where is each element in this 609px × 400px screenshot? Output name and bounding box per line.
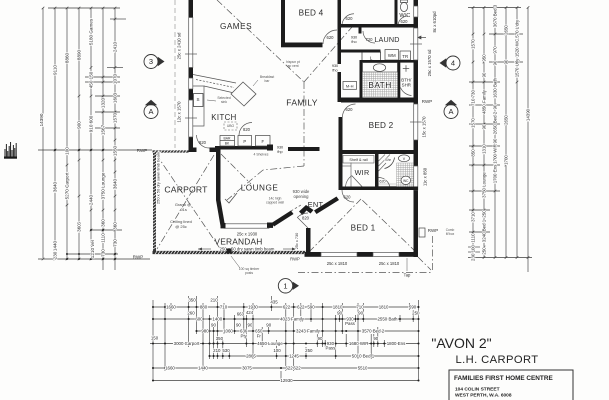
svg-text:1550: 1550 (113, 145, 118, 156)
svg-text:90: 90 (482, 124, 487, 129)
svg-text:P: P (243, 139, 246, 144)
svg-text:720: 720 (366, 37, 374, 42)
svg-text:BK: BK (225, 142, 230, 146)
svg-text:2410: 2410 (113, 41, 118, 52)
svg-text:1660: 1660 (165, 366, 175, 371)
svg-text:260: 260 (187, 311, 195, 316)
svg-text:1110: 1110 (101, 233, 106, 243)
svg-text:1400: 1400 (212, 317, 222, 322)
svg-text:910 600: 910 600 (89, 115, 94, 132)
svg-text:A: A (148, 107, 153, 116)
svg-text:FAMILIES FIRST HOME CENTRE: FAMILIES FIRST HOME CENTRE (454, 375, 553, 382)
svg-text:LAUND: LAUND (374, 35, 399, 44)
svg-text:M-H: M-H (346, 83, 354, 88)
svg-text:230 100: 230 100 (471, 245, 476, 261)
svg-text:3670 Bed 3: 3670 Bed 3 (493, 4, 498, 27)
svg-text:663: 663 (237, 311, 245, 316)
svg-text:1570: 1570 (471, 118, 476, 128)
svg-text:F: F (262, 139, 265, 144)
svg-text:622: 622 (297, 305, 305, 310)
svg-text:L.H. CARPORT: L.H. CARPORT (456, 354, 539, 366)
svg-text:1630 Bath: 1630 Bath (493, 77, 498, 98)
svg-text:W/C: W/C (399, 13, 410, 19)
svg-text:360: 360 (77, 224, 82, 232)
svg-text:90: 90 (493, 104, 498, 109)
svg-text:1810: 1810 (379, 305, 389, 310)
svg-text:930: 930 (351, 36, 357, 40)
svg-text:600: 600 (195, 317, 203, 322)
svg-text:100: 100 (273, 348, 281, 353)
svg-text:980: 980 (201, 329, 209, 334)
svg-text:5010 Bed 1: 5010 Bed 1 (352, 354, 375, 359)
svg-text:90: 90 (337, 311, 342, 316)
svg-text:3: 3 (149, 57, 153, 66)
svg-text:Tap: Tap (404, 273, 411, 278)
svg-text:LOUNGE: LOUNGE (241, 184, 279, 193)
svg-text:1570: 1570 (471, 39, 476, 49)
svg-text:capped wall: capped wall (266, 201, 284, 205)
svg-text:250: 250 (482, 247, 487, 255)
svg-text:930: 930 (277, 146, 283, 150)
svg-text:360: 360 (113, 222, 118, 230)
svg-text:RWP: RWP (422, 99, 432, 104)
svg-text:25c x 1810: 25c x 1810 (379, 261, 400, 266)
svg-text:15c x 1570: 15c x 1570 (422, 116, 427, 138)
svg-text:622: 622 (285, 366, 293, 371)
svg-text:360: 360 (101, 219, 106, 227)
svg-text:3710: 3710 (471, 212, 476, 222)
svg-text:WC: WC (403, 179, 409, 183)
svg-text:4850 Family: 4850 Family (482, 89, 487, 114)
svg-text:2550 Bath: 2550 Bath (377, 317, 398, 322)
svg-text:620: 620 (327, 35, 335, 40)
svg-text:Pty: Pty (241, 333, 248, 338)
svg-text:Pass: Pass (326, 346, 337, 351)
svg-text:9110: 9110 (53, 65, 58, 75)
svg-text:25c x 1810: 25c x 1810 (327, 261, 348, 266)
svg-text:90: 90 (248, 323, 253, 328)
svg-text:820: 820 (243, 127, 251, 132)
svg-text:250: 250 (305, 348, 313, 353)
svg-text:BED 2: BED 2 (369, 121, 394, 130)
svg-text:12930: 12930 (280, 378, 293, 383)
svg-text:25c x 2410 sd: 25c x 2410 sd (177, 32, 182, 59)
svg-text:3243 Family: 3243 Family (296, 329, 321, 334)
svg-text:2650 Bed 2: 2650 Bed 2 (493, 111, 498, 134)
svg-text:90: 90 (318, 336, 323, 341)
svg-text:1567: 1567 (101, 124, 106, 135)
svg-text:posts: posts (245, 271, 253, 275)
svg-text:3570 Bed 2: 3570 Bed 2 (362, 329, 385, 334)
svg-text:90: 90 (504, 59, 509, 64)
svg-text:104 COLIN STREET: 104 COLIN STREET (455, 387, 500, 393)
svg-text:4023 Family: 4023 Family (280, 317, 305, 322)
svg-text:S: S (196, 97, 199, 102)
svg-text:5510: 5510 (358, 366, 368, 371)
svg-text:900: 900 (77, 121, 82, 129)
svg-text:8c x 610pd: 8c x 610pd (432, 11, 437, 33)
svg-text:3750 Lounge: 3750 Lounge (482, 172, 487, 198)
svg-text:90: 90 (266, 323, 271, 328)
svg-text:1110: 1110 (471, 233, 476, 243)
svg-text:1603: 1603 (113, 92, 118, 103)
svg-text:UBO: UBO (227, 124, 235, 128)
svg-text:fho: fho (332, 69, 337, 73)
svg-text:880: 880 (200, 305, 208, 310)
svg-text:250 x 50 dry sawn timb beam: 250 x 50 dry sawn timb beam (156, 151, 161, 204)
svg-text:25c x 1570 sd: 25c x 1570 sd (427, 49, 432, 76)
svg-text:90: 90 (373, 336, 378, 341)
svg-text:90: 90 (482, 72, 487, 77)
svg-text:bar: bar (265, 79, 271, 83)
svg-text:VERANDAH: VERANDAH (214, 237, 262, 247)
svg-text:90: 90 (493, 60, 498, 65)
svg-text:8860: 8860 (65, 52, 70, 63)
svg-text:3240 Bed 1: 3240 Bed 1 (482, 219, 487, 242)
svg-text:424: 424 (246, 310, 254, 315)
svg-text:1700 WIR: 1700 WIR (493, 144, 498, 164)
svg-text:M'box: M'box (446, 232, 455, 236)
svg-text:11c x 850: 11c x 850 (423, 167, 428, 186)
svg-text:3075: 3075 (242, 366, 252, 371)
svg-text:620: 620 (346, 107, 354, 112)
svg-text:1: 1 (283, 282, 287, 291)
svg-text:530: 530 (222, 348, 230, 353)
svg-text:@ 25c: @ 25c (175, 224, 187, 229)
svg-text:820: 820 (199, 140, 207, 145)
svg-text:BED 1: BED 1 (351, 224, 376, 233)
svg-text:1440: 1440 (198, 366, 208, 371)
svg-text:3640: 3640 (113, 178, 118, 189)
svg-text:1320: 1320 (101, 97, 106, 108)
svg-text:100: 100 (65, 147, 70, 155)
svg-text:1520 WC: 1520 WC (515, 39, 520, 57)
svg-text:ap vent: ap vent (287, 64, 298, 68)
svg-text:BATH: BATH (368, 80, 391, 90)
svg-text:8890: 8890 (77, 49, 82, 60)
svg-text:950: 950 (482, 54, 487, 62)
svg-text:590: 590 (307, 305, 315, 310)
svg-text:1440: 1440 (53, 240, 58, 251)
svg-text:620: 620 (401, 19, 409, 24)
svg-text:730: 730 (101, 249, 106, 257)
svg-text:90: 90 (236, 323, 241, 328)
svg-text:5270 Carport: 5270 Carport (65, 172, 70, 200)
svg-text:850: 850 (471, 149, 476, 157)
svg-text:435: 435 (270, 300, 278, 305)
svg-text:2440: 2440 (89, 194, 94, 205)
svg-text:FAMILY: FAMILY (286, 98, 317, 108)
svg-text:820: 820 (302, 216, 310, 221)
svg-text:710: 710 (220, 305, 228, 310)
svg-text:fhp: fhp (277, 150, 282, 154)
svg-text:fho: fho (351, 40, 356, 44)
svg-text:1800 Ens: 1800 Ens (387, 341, 406, 346)
svg-text:3000 Carport: 3000 Carport (174, 341, 200, 346)
svg-text:2650: 2650 (504, 25, 509, 35)
svg-text:5180 Games: 5180 Games (89, 18, 94, 45)
svg-text:RWP: RWP (137, 148, 147, 153)
svg-text:Fr: Fr (257, 333, 262, 338)
svg-text:"AVON 2": "AVON 2" (431, 335, 491, 351)
svg-text:opening: opening (294, 194, 310, 199)
svg-text:1700 Ens: 1700 Ens (493, 164, 498, 183)
svg-text:1810: 1810 (333, 305, 343, 310)
svg-text:1070: 1070 (113, 73, 118, 84)
svg-text:90: 90 (211, 323, 216, 328)
svg-text:622: 622 (293, 366, 301, 371)
svg-text:12c x 1570: 12c x 1570 (177, 101, 182, 123)
svg-text:730: 730 (113, 239, 118, 247)
svg-text:3640: 3640 (53, 181, 58, 192)
svg-text:4: 4 (451, 59, 455, 68)
svg-text:90: 90 (358, 311, 363, 316)
svg-text:1570 Utly: 1570 Utly (515, 58, 520, 77)
svg-text:4 Shelves: 4 Shelves (254, 153, 269, 157)
svg-text:1060: 1060 (223, 329, 233, 334)
svg-text:1210 Ver: 1210 Ver (90, 239, 95, 258)
svg-text:25c x 1930: 25c x 1930 (237, 232, 258, 237)
svg-text:RWP: RWP (290, 257, 300, 262)
svg-text:590: 590 (409, 305, 417, 310)
svg-text:620: 620 (344, 195, 352, 200)
svg-text:BAR: BAR (224, 137, 232, 141)
svg-text:1930: 1930 (248, 305, 258, 310)
svg-text:RWP: RWP (428, 228, 438, 233)
svg-text:250: 250 (412, 311, 420, 316)
svg-text:970: 970 (493, 46, 498, 54)
svg-text:WIR: WIR (355, 168, 370, 177)
svg-text:25c x 730: 25c x 730 (295, 233, 299, 249)
svg-text:450 150: 450 150 (89, 71, 94, 88)
svg-text:1570: 1570 (113, 112, 118, 123)
svg-text:210: 210 (213, 348, 221, 353)
svg-text:620: 620 (379, 180, 385, 184)
svg-text:WEST PERTH, W.A. 6008: WEST PERTH, W.A. 6008 (455, 393, 512, 399)
svg-text:620: 620 (346, 16, 354, 21)
svg-text:710 730: 710 730 (471, 90, 476, 106)
svg-text:A: A (448, 107, 453, 116)
svg-text:BED 4: BED 4 (299, 9, 324, 18)
svg-text:1310: 1310 (482, 144, 487, 154)
svg-text:622: 622 (283, 305, 291, 310)
svg-text:WM: WM (388, 53, 396, 58)
svg-text:230: 230 (53, 251, 58, 259)
svg-text:1680 WIR: 1680 WIR (349, 341, 369, 346)
svg-text:1660: 1660 (166, 305, 176, 310)
svg-text:90: 90 (493, 138, 498, 143)
svg-text:sink: sink (221, 100, 227, 104)
svg-text:CARPORT: CARPORT (164, 185, 208, 195)
svg-text:2650: 2650 (504, 115, 509, 125)
svg-text:1245: 1245 (289, 354, 299, 359)
svg-text:3750 Lounge: 3750 Lounge (101, 172, 106, 199)
svg-text:SHR: SHR (402, 83, 411, 88)
svg-text:4650 Lounge: 4650 Lounge (257, 341, 283, 346)
svg-text:1570 L'dry: 1570 L'dry (515, 19, 520, 40)
svg-text:350: 350 (188, 298, 196, 303)
svg-text:1700: 1700 (504, 155, 509, 165)
svg-text:RWP: RWP (133, 255, 143, 260)
svg-text:150: 150 (151, 335, 159, 340)
svg-text:250: 250 (482, 210, 487, 218)
svg-text:350: 350 (216, 336, 224, 341)
svg-text:14390: 14390 (526, 108, 531, 121)
svg-text:GAMES: GAMES (220, 22, 252, 31)
svg-text:TR: TR (402, 54, 408, 59)
svg-text:-01s: -01s (179, 207, 187, 212)
svg-text:210: 210 (210, 298, 218, 303)
svg-text:KITCH: KITCH (211, 113, 236, 122)
svg-text:930: 930 (332, 64, 338, 68)
svg-text:Pass: Pass (345, 321, 356, 326)
svg-text:Shelf & rail: Shelf & rail (349, 158, 368, 162)
svg-text:710: 710 (356, 305, 364, 310)
svg-text:14390: 14390 (39, 113, 44, 126)
svg-text:Shr: Shr (385, 158, 392, 162)
svg-text:2865: 2865 (246, 354, 256, 359)
